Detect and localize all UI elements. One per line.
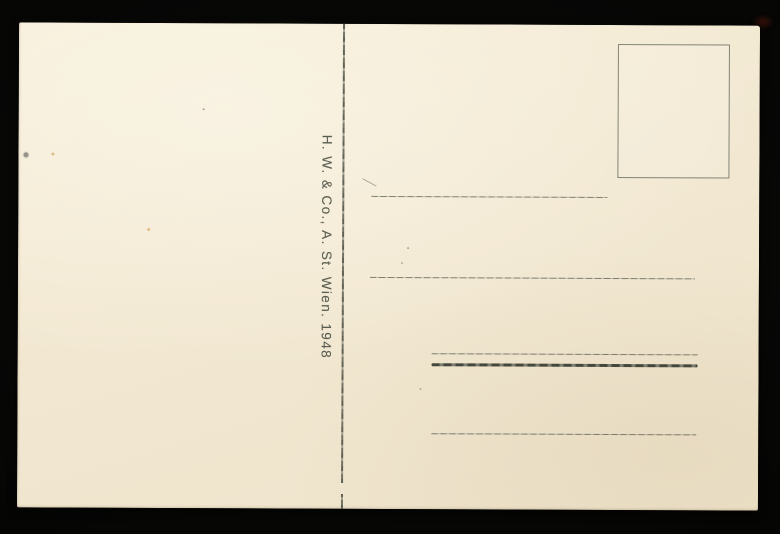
address-line	[431, 433, 696, 435]
address-line	[371, 196, 607, 198]
paper-speck	[203, 108, 205, 110]
paper-speck	[401, 262, 403, 264]
paper-speck	[419, 388, 421, 390]
paper-speck	[51, 153, 54, 156]
paper-speck	[23, 152, 28, 157]
address-line	[432, 363, 698, 367]
postcard-back: H. W. & Co., A. St. Wien. 1948	[17, 22, 760, 510]
address-line	[370, 277, 695, 279]
photo-background: H. W. & Co., A. St. Wien. 1948	[0, 0, 780, 534]
address-line	[432, 353, 698, 355]
address-lines	[17, 22, 760, 510]
paper-speck	[147, 228, 150, 231]
paper-speck	[407, 247, 409, 249]
